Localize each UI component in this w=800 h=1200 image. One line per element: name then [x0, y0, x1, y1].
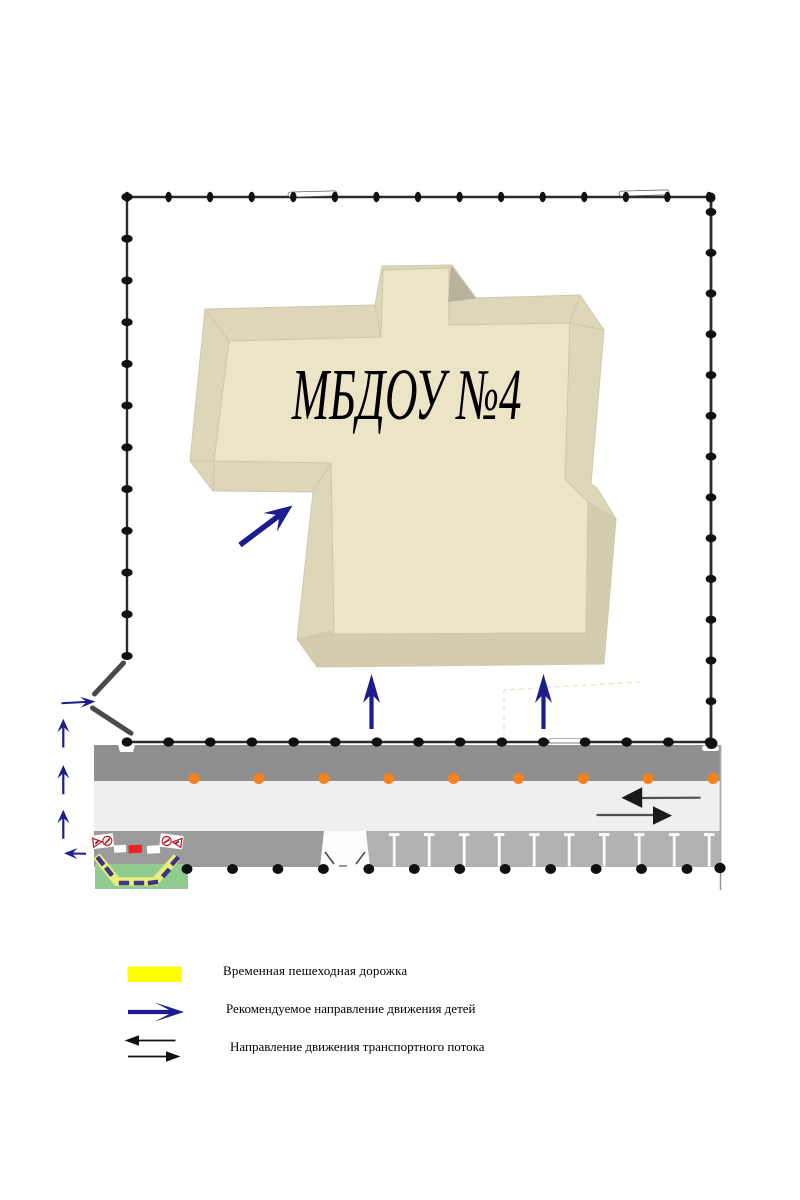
svg-text:Рекомендуемое направление движ: Рекомендуемое направление движения детей	[226, 1001, 476, 1016]
svg-text:Временная пешеходная дорожка: Временная пешеходная дорожка	[223, 963, 407, 978]
svg-text:МБДОУ №4: МБДОУ №4	[291, 355, 521, 436]
svg-text:Направление движения транспорт: Направление движения транспортного поток…	[230, 1039, 485, 1054]
